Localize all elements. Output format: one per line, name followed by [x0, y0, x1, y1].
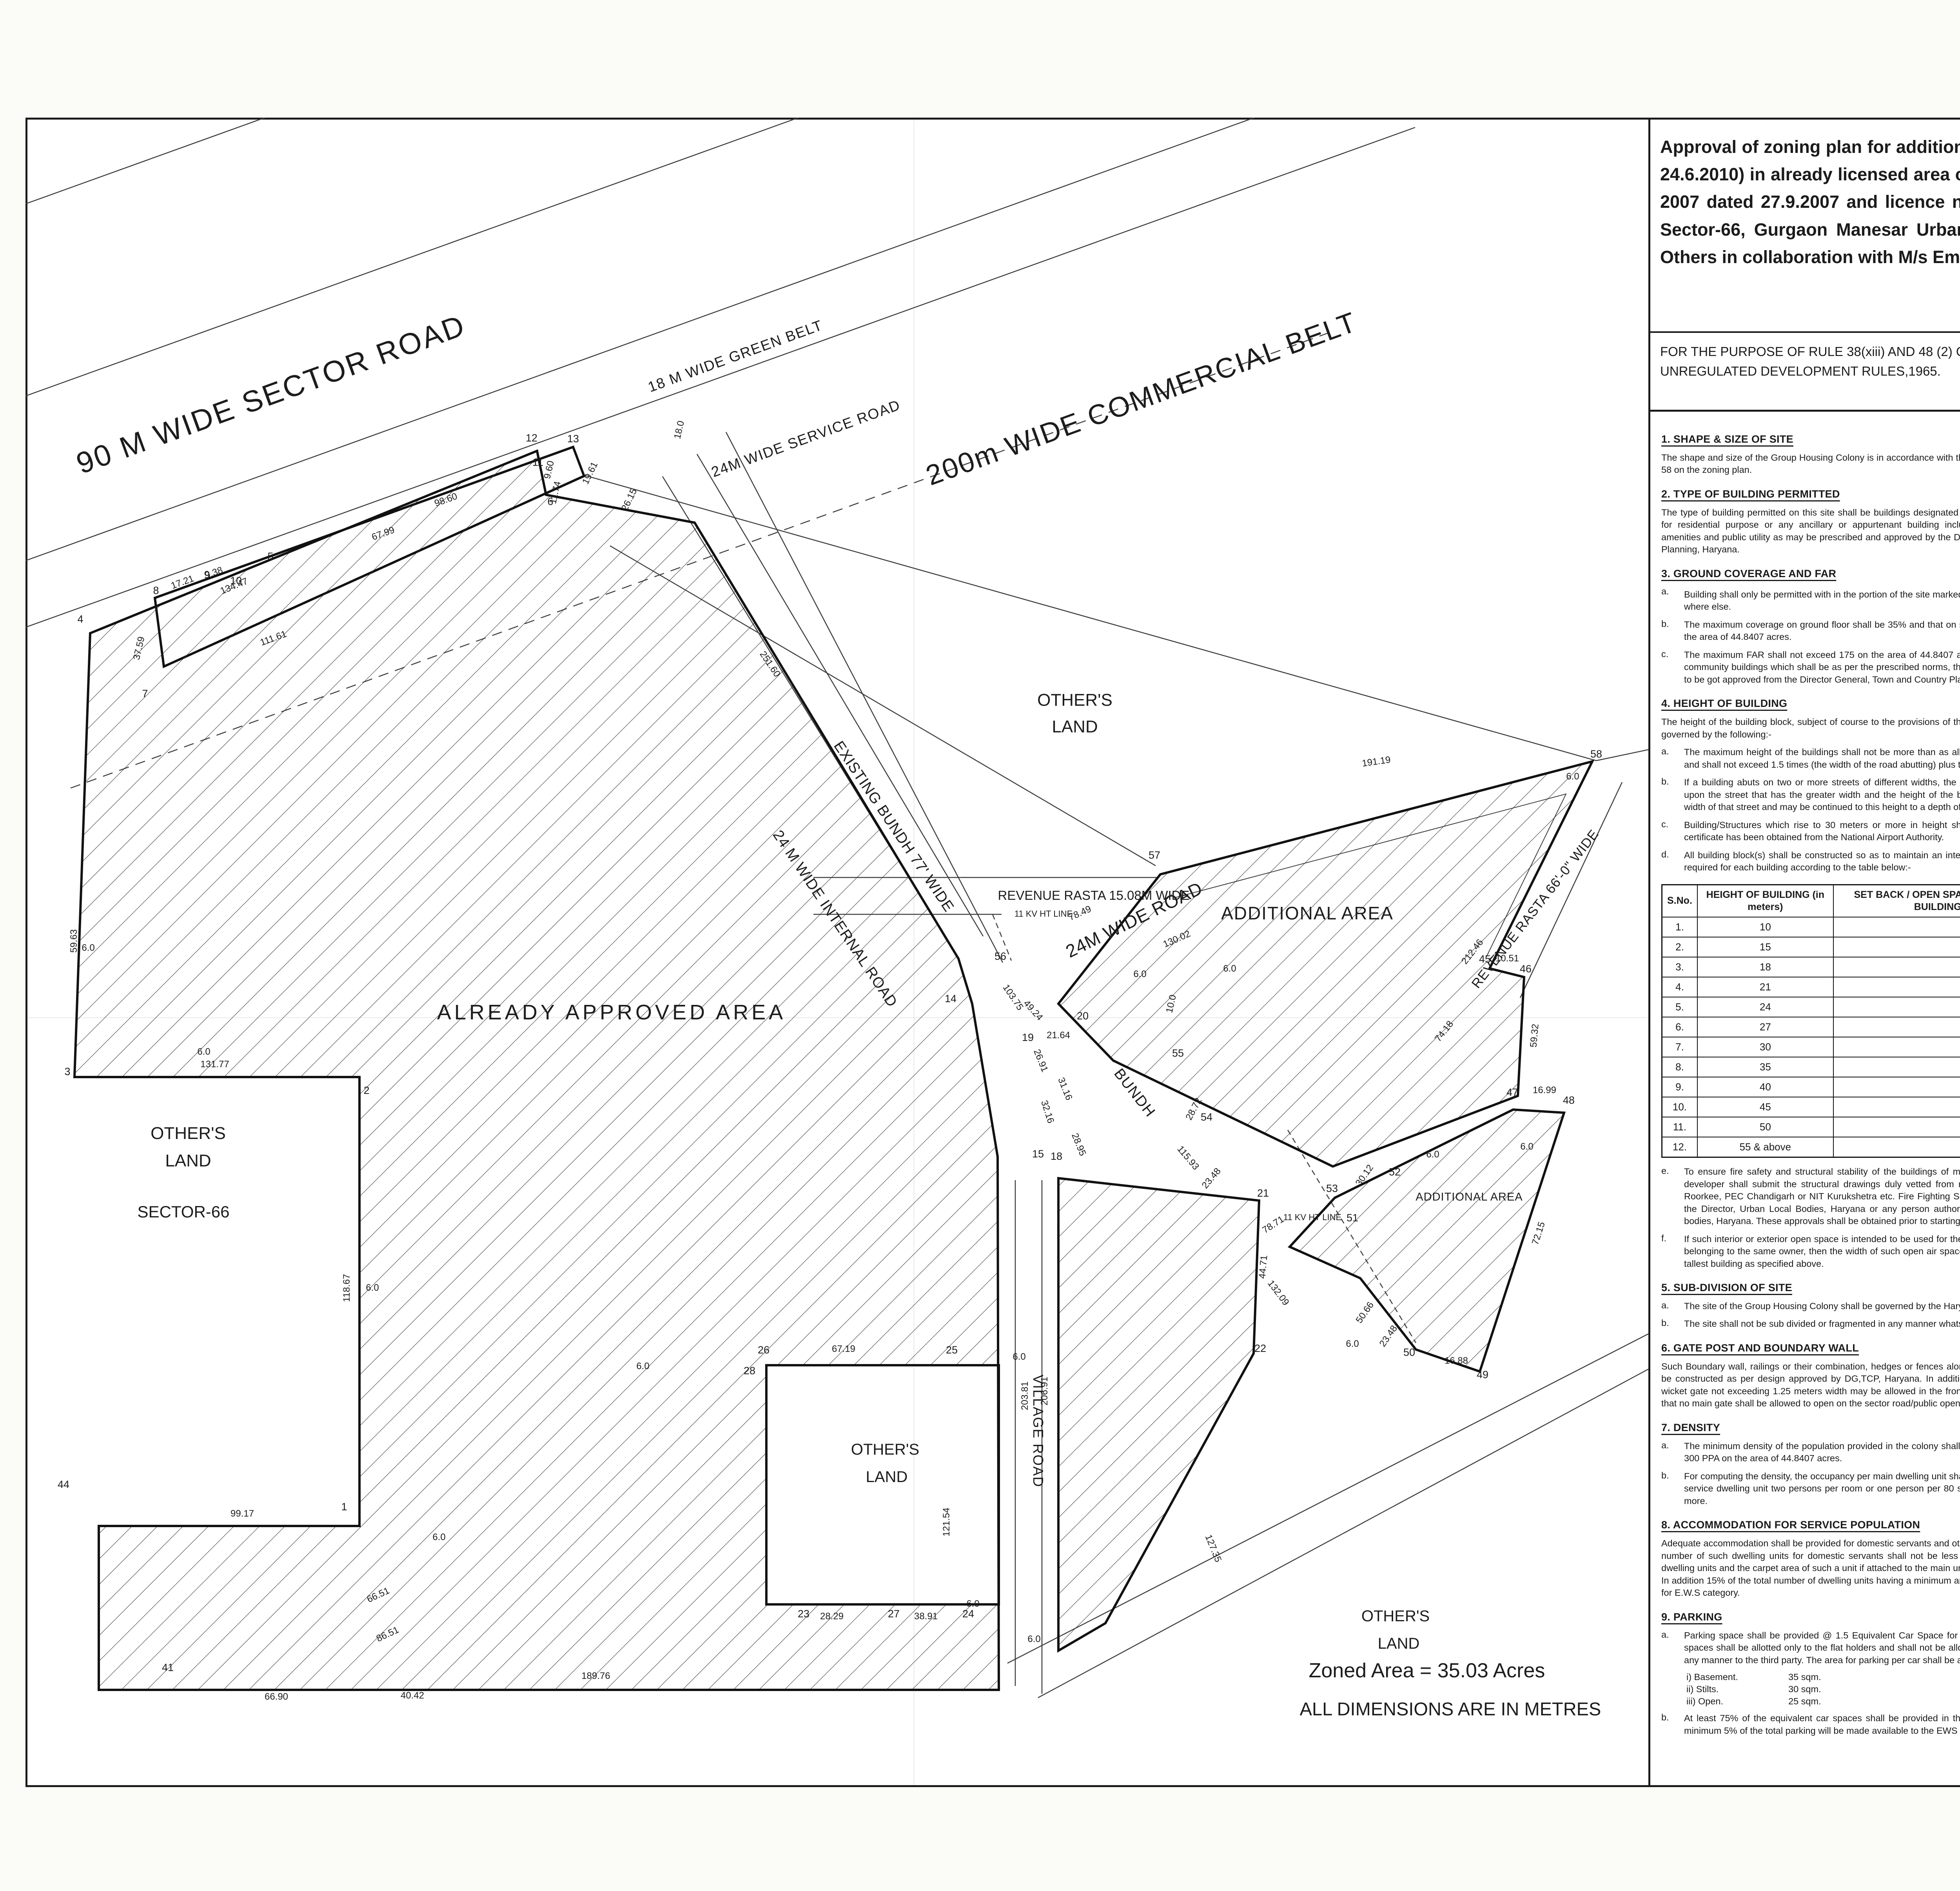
panel-divider: [1648, 118, 1650, 1787]
point-number: 54: [1201, 1111, 1212, 1123]
map-label: Zoned Area = 35.03 Acres: [1309, 1659, 1545, 1682]
already-approved-area-polygon: [74, 451, 999, 1690]
point-number: 23: [798, 1608, 809, 1620]
dimension-label: 23.48: [1377, 1323, 1400, 1349]
map-label: SECTOR-66: [138, 1203, 230, 1221]
setback-table-row: 9.4012: [1662, 1077, 1960, 1097]
point-number: 57: [1149, 849, 1160, 861]
map-label: LAND: [1052, 717, 1098, 736]
dimension-label: 44.71: [1257, 1255, 1269, 1279]
dimension-label: 203.81: [1020, 1381, 1030, 1410]
dimension-label: 21.64: [1047, 1030, 1070, 1041]
dimension-label: 6.0: [1133, 969, 1146, 979]
section-heading: 6. GATE POST AND BOUNDARY WALL: [1661, 1342, 1960, 1354]
dimension-label: 6.0: [1566, 771, 1579, 782]
dimension-label: 6.0: [1520, 1141, 1533, 1152]
dimension-label: 6.0: [966, 1599, 979, 1609]
signature-strokes: [1648, 1555, 1960, 1787]
dimension-label: 78.49: [1067, 904, 1093, 923]
setback-table-cell: 14: [1833, 1117, 1960, 1137]
dimension-label: 28.95: [1069, 1132, 1088, 1157]
section-heading: 3. GROUND COVERAGE AND FAR: [1661, 568, 1960, 580]
setback-table-row: 1.103: [1662, 917, 1960, 937]
setback-table-cell: 11: [1833, 1057, 1960, 1077]
setback-table-cell: 10: [1697, 917, 1833, 937]
dimension-label: 66.90: [265, 1691, 288, 1702]
dimension-label: 131.77: [200, 1059, 229, 1070]
dimension-label: 191.19: [1361, 754, 1391, 769]
rule-item-label: a.: [1661, 1440, 1679, 1465]
setback-table-cell: 12.: [1662, 1137, 1697, 1157]
setback-table-row: 8.3511: [1662, 1057, 1960, 1077]
rule-item-text: The site of the Group Housing Colony sha…: [1684, 1300, 1960, 1312]
dimension-label: 49.24: [1021, 998, 1045, 1023]
setback-table-cell: 3: [1833, 917, 1960, 937]
point-number: 10: [230, 575, 242, 587]
rule-item-text: For computing the density, the occupancy…: [1684, 1470, 1960, 1507]
rule-item-text: Building/Structures which rise to 30 met…: [1684, 819, 1960, 844]
map-label: LAND: [165, 1151, 211, 1170]
rule-item-label: f.: [1661, 1233, 1679, 1270]
map-label: LAND: [866, 1468, 908, 1486]
rule-paragraph: The height of the building block, subjec…: [1661, 716, 1960, 741]
map-label: 11 KV HT LINE: [1283, 1212, 1341, 1222]
setback-table-row: 4.217: [1662, 977, 1960, 997]
setback-table-cell: 8.: [1662, 1057, 1697, 1077]
approval-divider: [1648, 331, 1960, 333]
point-number: 15: [1032, 1148, 1044, 1160]
map-label: ALREADY APPROVED AREA: [437, 1001, 786, 1024]
signature-block: DRG. NO. DG,TCP 2779 DATED:- 15. 9. 2011…: [1648, 1555, 1960, 1787]
setback-table-cell: 5.: [1662, 997, 1697, 1017]
map-label: 90 M WIDE SECTOR ROAD: [72, 309, 470, 481]
rule-item-label: b.: [1661, 619, 1679, 643]
setback-table-cell: 8: [1833, 997, 1960, 1017]
dimension-label: 38.91: [914, 1611, 938, 1622]
point-number: 7: [142, 688, 148, 699]
rule-item-text: The maximum height of the buildings shal…: [1684, 746, 1960, 771]
dimension-label: 50.66: [1354, 1300, 1376, 1325]
setback-table-cell: 1.: [1662, 917, 1697, 937]
setback-table-row: 5.248: [1662, 997, 1960, 1017]
rules-top-divider: [1648, 410, 1960, 412]
map-label: ADDITIONAL AREA: [1221, 903, 1394, 923]
setback-table-cell: 35: [1697, 1057, 1833, 1077]
point-number: 21: [1257, 1187, 1269, 1199]
rule-item-label: b.: [1661, 1318, 1679, 1330]
dimension-label: 18.0: [672, 420, 686, 440]
rule-item-text: The maximum coverage on ground floor sha…: [1684, 619, 1960, 643]
dimension-label: 6.0: [1223, 963, 1236, 974]
dimension-label: 6.0: [366, 1282, 379, 1293]
point-number: 13: [567, 433, 579, 445]
dimension-label: 78.71: [1260, 1214, 1286, 1235]
rule-item: a.The minimum density of the population …: [1661, 1440, 1960, 1465]
rule-item-label: a.: [1661, 586, 1679, 613]
dimension-label: 59.63: [69, 929, 79, 953]
setback-table-row: 6.279: [1662, 1017, 1960, 1037]
point-number: 56: [995, 950, 1006, 962]
rule-item-text: Building shall only be permitted with in…: [1684, 586, 1960, 613]
point-number: 3: [64, 1066, 70, 1077]
rule-item: f.If such interior or exterior open spac…: [1661, 1233, 1960, 1270]
point-number: 6: [547, 496, 553, 507]
setback-table-header: S.No.: [1662, 885, 1697, 917]
setback-table-row: 7.3010: [1662, 1037, 1960, 1057]
point-number: 55: [1172, 1047, 1184, 1059]
approval-statement: Approval of zoning plan for additional l…: [1660, 133, 1960, 271]
setback-table-cell: 21: [1697, 977, 1833, 997]
rule-item-label: a.: [1661, 746, 1679, 771]
rule-paragraph: The shape and size of the Group Housing …: [1661, 452, 1960, 476]
rule-item-label: e.: [1661, 1166, 1679, 1227]
setback-table-header: HEIGHT OF BUILDING (in meters): [1697, 885, 1833, 917]
setback-table-cell: 40: [1697, 1077, 1833, 1097]
map-label: OTHER'S: [1361, 1608, 1430, 1625]
setback-table-row: 2.155: [1662, 937, 1960, 957]
rule-item: a.The site of the Group Housing Colony s…: [1661, 1300, 1960, 1312]
dimension-label: 6.0: [82, 943, 94, 953]
setback-table-cell: 5: [1833, 937, 1960, 957]
point-number: 20: [1077, 1010, 1089, 1022]
map-label: ADDITIONAL AREA: [1416, 1191, 1523, 1203]
zoning-map: 90 M WIDE SECTOR ROAD18 M WIDE GREEN BEL…: [25, 118, 1648, 1788]
dimension-label: 189.76: [581, 1671, 610, 1681]
setback-table-cell: 6.: [1662, 1017, 1697, 1037]
setback-table-cell: 4.: [1662, 977, 1697, 997]
setback-table-cell: 9: [1833, 1017, 1960, 1037]
setback-table-cell: 3.: [1662, 957, 1697, 977]
dimension-label: 99.17: [230, 1508, 254, 1519]
map-label: OTHER'S: [851, 1441, 919, 1458]
setback-table-cell: 16: [1833, 1137, 1960, 1157]
point-number: 41: [162, 1662, 174, 1673]
rule-item-text: To ensure fire safety and structural sta…: [1684, 1166, 1960, 1227]
setback-table-row: 11.5014: [1662, 1117, 1960, 1137]
setback-table-cell: 30: [1697, 1037, 1833, 1057]
setback-table-cell: 6: [1833, 957, 1960, 977]
point-number: 45: [1479, 953, 1491, 965]
point-number: 50: [1403, 1346, 1415, 1358]
dimension-label: 10.51: [1495, 953, 1519, 964]
map-label: 200m WIDE COMMERCIAL BELT: [922, 306, 1361, 492]
rule-item-text: The maximum FAR shall not exceed 175 on …: [1684, 649, 1960, 686]
rule-item-label: d.: [1661, 849, 1679, 874]
section-heading: 5. SUB-DIVISION OF SITE: [1661, 1282, 1960, 1294]
setback-table-row: 10.4513: [1662, 1097, 1960, 1117]
setback-table-cell: 11.: [1662, 1117, 1697, 1137]
point-number: 12: [526, 432, 537, 444]
rule-item-label: a.: [1661, 1300, 1679, 1312]
setback-table-header-row: S.No.HEIGHT OF BUILDING (in meters)SET B…: [1662, 885, 1960, 917]
map-label: ALL DIMENSIONS ARE IN METRES: [1300, 1698, 1601, 1719]
dimension-label: 6.0: [197, 1046, 210, 1057]
point-number: 11: [532, 456, 543, 468]
dimension-label: 6.0: [1027, 1634, 1040, 1644]
point-number: 52: [1389, 1166, 1401, 1178]
rule-item-label: c.: [1661, 649, 1679, 686]
dimension-label: 23.48: [1200, 1166, 1223, 1190]
setback-table-cell: 55 & above: [1697, 1137, 1833, 1157]
point-number: 14: [945, 993, 956, 1005]
point-number: 25: [946, 1344, 958, 1356]
dimension-label: 40.42: [401, 1690, 424, 1701]
rule-item: b.For computing the density, the occupan…: [1661, 1470, 1960, 1507]
setback-table-cell: 15: [1697, 937, 1833, 957]
dimension-label: 31.16: [1056, 1076, 1074, 1102]
section-heading: 8. ACCOMMODATION FOR SERVICE POPULATION: [1661, 1519, 1960, 1531]
rule-item-text: All building block(s) shall be construct…: [1684, 849, 1960, 874]
point-number: 46: [1520, 963, 1532, 975]
dimension-label: 16.88: [1445, 1355, 1468, 1366]
dimension-label: 6.0: [1013, 1351, 1025, 1362]
point-number: 27: [888, 1608, 900, 1620]
section-heading: 7. DENSITY: [1661, 1422, 1960, 1434]
setback-table-row: 3.186: [1662, 957, 1960, 977]
scanned-zoning-plan-document: Approval of zoning plan for additional l…: [0, 0, 1960, 1891]
point-number: 58: [1590, 748, 1602, 760]
rule-paragraph: Such Boundary wall, railings or their co…: [1661, 1361, 1960, 1410]
dimension-label: 26.91: [1031, 1048, 1050, 1074]
point-number: 51: [1347, 1212, 1358, 1224]
setback-table-cell: 45: [1697, 1097, 1833, 1117]
rule-item-text: If such interior or exterior open space …: [1684, 1233, 1960, 1270]
rule-item: b.If a building abuts on two or more str…: [1661, 776, 1960, 813]
point-number: 19: [1022, 1032, 1034, 1043]
dimension-label: 6.0: [1346, 1339, 1359, 1349]
map-label: LAND: [1378, 1635, 1420, 1652]
rules-column-left: 1. SHAPE & SIZE OF SITEThe shape and siz…: [1661, 421, 1960, 1742]
setback-table-cell: 24: [1697, 997, 1833, 1017]
setback-table-cell: 7: [1833, 977, 1960, 997]
rule-item-label: b.: [1661, 1470, 1679, 1507]
point-number: 44: [58, 1479, 69, 1490]
setback-table-cell: 10.: [1662, 1097, 1697, 1117]
point-number: 48: [1563, 1094, 1575, 1106]
dimension-label: 26.15: [619, 487, 639, 513]
point-number: 53: [1326, 1183, 1338, 1194]
setback-table-cell: 50: [1697, 1117, 1833, 1137]
dimension-label: 103.75: [1001, 983, 1025, 1012]
dimension-label: 16.99: [1533, 1085, 1556, 1095]
point-number: 8: [153, 585, 159, 596]
setback-table-header: SET BACK / OPEN SPACE TO BE LEFT AROUND …: [1833, 885, 1960, 917]
dimension-label: 32.16: [1039, 1099, 1056, 1124]
rule-reference: FOR THE PURPOSE OF RULE 38(xiii) AND 48 …: [1660, 342, 1960, 381]
setback-table-row: 12.55 & above16: [1662, 1137, 1960, 1157]
dimension-label: 132.09: [1265, 1278, 1291, 1308]
rule-item-label: b.: [1661, 776, 1679, 813]
dimension-label: 6.0: [432, 1532, 445, 1542]
point-number: 24: [962, 1608, 974, 1620]
setback-table-cell: 9.: [1662, 1077, 1697, 1097]
rule-item: c.Building/Structures which rise to 30 m…: [1661, 819, 1960, 844]
setback-table-cell: 2.: [1662, 937, 1697, 957]
rule-item: a.The maximum height of the buildings sh…: [1661, 746, 1960, 771]
section-heading: 2. TYPE OF BUILDING PERMITTED: [1661, 488, 1960, 500]
dimension-label: 6.0: [1426, 1149, 1439, 1160]
setback-table-cell: 12: [1833, 1077, 1960, 1097]
rule-item-text: If a building abuts on two or more stree…: [1684, 776, 1960, 813]
setback-table-cell: 18: [1697, 957, 1833, 977]
rule-item: b.The site shall not be sub divided or f…: [1661, 1318, 1960, 1330]
dimension-label: 6.0: [636, 1361, 649, 1371]
point-number: 4: [77, 613, 83, 625]
rule-item: c.The maximum FAR shall not exceed 175 o…: [1661, 649, 1960, 686]
rule-item-text: The minimum density of the population pr…: [1684, 1440, 1960, 1465]
point-number: 28: [744, 1365, 755, 1377]
dimension-label: 28.29: [820, 1611, 844, 1622]
point-number: 9: [204, 569, 210, 581]
dimension-label: 67.19: [832, 1344, 855, 1354]
dimension-label: 115.93: [1175, 1144, 1201, 1172]
map-label: OTHER'S: [1037, 690, 1112, 710]
dimension-label: 72.15: [1530, 1221, 1547, 1246]
dimension-label: 127.35: [1203, 1533, 1224, 1564]
rule-item: d.All building block(s) shall be constru…: [1661, 849, 1960, 874]
rule-item: a.Building shall only be permitted with …: [1661, 586, 1960, 613]
map-label: 24M WIDE SERVICE ROAD: [709, 397, 902, 480]
point-number: 22: [1254, 1342, 1266, 1354]
east-strip-polygon: [1058, 1178, 1259, 1651]
point-number: 18: [1051, 1150, 1062, 1162]
setback-table: S.No.HEIGHT OF BUILDING (in meters)SET B…: [1661, 884, 1960, 1158]
setback-table-cell: 7.: [1662, 1037, 1697, 1057]
rule-paragraph: The type of building permitted on this s…: [1661, 507, 1960, 556]
dimension-label: 118.67: [341, 1274, 352, 1302]
section-heading: 1. SHAPE & SIZE OF SITE: [1661, 433, 1960, 445]
point-number: 26: [758, 1344, 769, 1356]
point-number: 5: [267, 550, 273, 562]
point-number: 49: [1477, 1369, 1488, 1381]
point-number: 2: [363, 1084, 369, 1096]
setback-table-cell: 10: [1833, 1037, 1960, 1057]
dimension-label: 59.32: [1528, 1023, 1541, 1048]
point-number: 1: [341, 1501, 347, 1513]
setback-table-cell: 27: [1697, 1017, 1833, 1037]
point-number: 47: [1506, 1086, 1518, 1098]
map-label: OTHER'S: [151, 1124, 226, 1143]
map-label: 18 M WIDE GREEN BELT: [646, 317, 825, 395]
dimension-label: 121.54: [941, 1508, 952, 1536]
map-label: 11 KV HT LINE: [1014, 909, 1073, 919]
rule-item-label: c.: [1661, 819, 1679, 844]
dimension-label: 206.91: [1039, 1377, 1050, 1405]
rule-item: b.The maximum coverage on ground floor s…: [1661, 619, 1960, 643]
setback-table-cell: 13: [1833, 1097, 1960, 1117]
rule-item: e.To ensure fire safety and structural s…: [1661, 1166, 1960, 1227]
section-heading: 4. HEIGHT OF BUILDING: [1661, 698, 1960, 710]
rule-item-text: The site shall not be sub divided or fra…: [1684, 1318, 1960, 1330]
